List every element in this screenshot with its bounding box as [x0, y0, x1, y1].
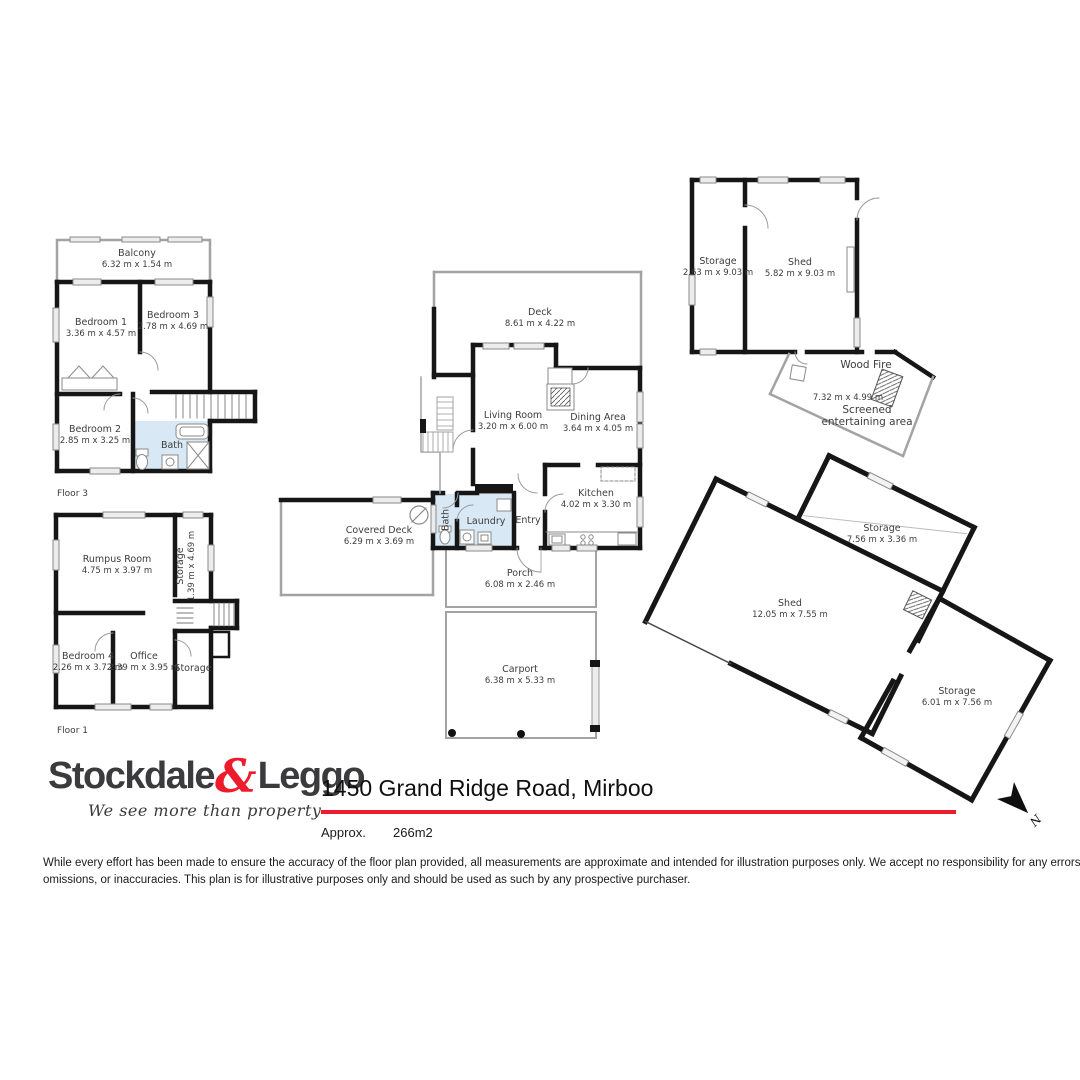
brand-ampersand-icon: &: [215, 754, 257, 798]
room-label-deck: Deck8.61 m x 4.22 m: [505, 307, 575, 329]
floor1-plan: [53, 512, 237, 710]
screened-table-icon: [790, 365, 806, 381]
carport-post: [448, 729, 456, 737]
disclaimer-line-1: While every effort has been made to ensu…: [43, 855, 1080, 872]
wall-chunk: [475, 484, 513, 494]
room-label-dining: Dining Area3.64 m x 4.05 m: [563, 412, 633, 434]
room-label-storage-top: Storage7.56 m x 3.36 m: [847, 523, 917, 545]
floor1-walls: [56, 515, 237, 707]
agency-logo: Stockdale&Leggo: [48, 754, 364, 798]
room-label-bedroom3: Bedroom 32.78 m x 4.69 m: [138, 310, 208, 332]
approx-label: Approx.: [321, 825, 366, 840]
shed-roller-marker: [847, 247, 854, 292]
room-label-covered-deck: Covered Deck6.29 m x 3.69 m: [344, 525, 414, 547]
room-label-storage-tr: Storage2.63 m x 9.03 m: [683, 256, 753, 278]
room-label-laundry: Laundry: [467, 516, 506, 527]
room-label-carport: Carport6.38 m x 5.33 m: [485, 664, 555, 686]
room-label-porch: Porch6.08 m x 2.46 m: [485, 568, 555, 590]
approx-area-value: 266m2: [393, 825, 433, 840]
room-label-entry: Entry: [515, 515, 540, 526]
ceiling-fan-icon: [410, 506, 428, 524]
carport-gate: [592, 666, 599, 726]
balcony-windows: [70, 237, 202, 242]
disclaimer-text: While every effort has been made to ensu…: [43, 855, 1080, 889]
room-label-big-shed: Shed12.05 m x 7.55 m: [752, 598, 828, 620]
big-shed-plan: [637, 413, 1080, 808]
room-label-bath-floor3: Bath: [161, 440, 183, 451]
room-label-storage-right: Storage6.01 m x 7.56 m: [922, 686, 992, 708]
room-label-shed-tr: Shed5.82 m x 9.03 m: [765, 257, 835, 279]
brand-name-left: Stockdale: [48, 754, 214, 798]
room-label-bedroom1: Bedroom 13.36 m x 4.57 m: [66, 317, 136, 339]
floorplan-page: N Floor 3 Floor 1 Balcony 6.32 m x 1.54 …: [0, 0, 1080, 1080]
room-label-storage-side: Storage1.39 m x 4.69 m: [175, 531, 197, 601]
room-label-storage-corner: Storage: [174, 663, 211, 674]
room-label-living: Living Room3.20 m x 6.00 m: [478, 410, 548, 432]
property-address-title: 1450 Grand Ridge Road, Mirboo: [321, 775, 653, 802]
fireplace-icon: [547, 384, 574, 410]
floor1-tag: Floor 1: [57, 726, 88, 736]
label-screened-dims: 7.32 m x 4.99 m: [813, 392, 883, 403]
north-arrow: N: [997, 782, 1049, 834]
room-label-rumpus: Rumpus Room4.75 m x 3.97 m: [82, 554, 152, 576]
stairs-main: [420, 377, 453, 493]
brand-tagline: We see more than property: [88, 801, 321, 820]
room-label-office: Office2.39 m x 3.95 m: [109, 651, 179, 673]
room-label-kitchen: Kitchen4.02 m x 3.30 m: [561, 488, 631, 510]
room-label-balcony: Balcony 6.32 m x 1.54 m: [102, 248, 172, 270]
big-shed-open-edge: [646, 622, 731, 664]
floor3-tag: Floor 3: [57, 489, 88, 499]
carport-post: [517, 730, 525, 738]
room-label-bedroom2: Bedroom 22.85 m x 3.25 m: [60, 424, 130, 446]
stairs-floor3: [176, 395, 246, 418]
stairs-floor1: [177, 603, 234, 626]
north-label: N: [1026, 811, 1044, 829]
floor1-step-nib: [211, 632, 229, 657]
disclaimer-line-2: omissions, or inaccuracies. This plan is…: [43, 872, 1080, 889]
label-screened-name: Screened entertaining area: [814, 404, 920, 428]
wardrobe-icon: [62, 366, 117, 390]
accent-divider: [321, 810, 956, 814]
label-wood-fire: Wood Fire: [840, 360, 891, 371]
pantry-cupboard: [548, 368, 588, 384]
floorplan-drawing: N: [0, 0, 1080, 1080]
room-label-bath-main: Bath: [441, 509, 452, 531]
